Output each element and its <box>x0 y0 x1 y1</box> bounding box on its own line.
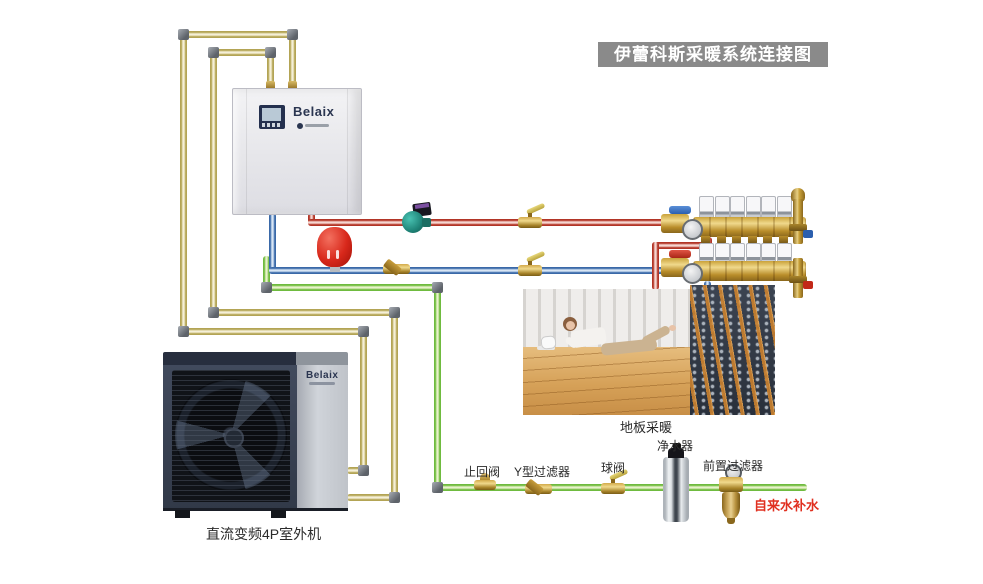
supply-pipe-run <box>308 219 672 226</box>
floor-heating-mat-photo <box>690 285 775 415</box>
manifold-actuator-cap <box>761 196 776 219</box>
unit-foot <box>175 510 190 518</box>
floor-heating-label: 地板采暖 <box>620 417 672 436</box>
outdoor-top-panel <box>163 352 348 365</box>
y-strainer-return-line <box>383 260 413 288</box>
refrigerant-pipe-inner-left <box>210 49 217 316</box>
check-valve-label: 止回阀 <box>464 463 500 480</box>
water-purifier <box>663 443 689 522</box>
unit-foot <box>271 510 286 518</box>
circulation-pump <box>402 202 434 234</box>
tank-highlight <box>336 250 339 259</box>
ball-valve-supply-line <box>516 202 546 228</box>
pipe-elbow-joint <box>208 307 219 318</box>
pre-filter-head <box>719 477 743 492</box>
laptop-screen <box>540 335 556 349</box>
valve-body <box>518 265 542 276</box>
pipe-elbow-joint <box>432 482 443 493</box>
pipe-elbow-joint <box>178 29 189 40</box>
pipe-elbow-joint <box>208 47 219 58</box>
lcd-screen <box>262 108 281 121</box>
pump-volute <box>402 211 424 233</box>
panel-seam <box>347 89 348 214</box>
manifold-actuator-cap <box>730 196 745 219</box>
title-banner: 伊蕾科斯采暖系统连接图 <box>598 42 828 67</box>
outdoor-brand-sub <box>309 382 335 385</box>
badge-bar <box>305 124 329 127</box>
return-pipe-riser <box>269 213 276 274</box>
woman-face <box>566 321 575 330</box>
fan-grille <box>172 370 290 502</box>
valve-body <box>518 217 542 228</box>
floor-planks <box>523 347 690 415</box>
air-vent-stem <box>793 199 803 244</box>
outdoor-brand-logo: Belaix <box>306 370 338 381</box>
check-valve-body <box>474 480 496 490</box>
outdoor-side-panel <box>297 365 348 510</box>
water-purifier-label: 净水器 <box>657 437 693 454</box>
tank-highlight <box>327 250 330 259</box>
brand-badge <box>297 122 331 129</box>
woman-foot <box>669 325 676 331</box>
control-display <box>259 105 285 129</box>
badge-dot <box>297 123 303 129</box>
pipe-elbow-joint <box>389 492 400 503</box>
supply-manifold-valve-handle <box>669 206 691 214</box>
floor-heating-room-photo <box>523 289 690 415</box>
indoor-brand-logo: Belaix <box>293 104 334 119</box>
pipe-elbow-joint <box>432 282 443 293</box>
pipe-elbow-joint <box>265 47 276 58</box>
pipe-elbow-joint <box>389 307 400 318</box>
y-strainer-fill-line <box>525 480 555 508</box>
pipe-elbow-joint <box>261 282 272 293</box>
manifold-actuator-cap <box>746 196 761 219</box>
pipe-elbow-joint <box>358 326 369 337</box>
wood-floor <box>523 347 690 415</box>
return-manifold-valve-handle <box>669 250 691 258</box>
panel-seam <box>246 89 247 214</box>
pipe-elbow-joint <box>178 326 189 337</box>
tap-water-makeup-label: 自来水补水 <box>754 495 819 514</box>
purifier-body <box>663 457 689 522</box>
mat-pipes <box>690 285 775 415</box>
fill-pipe-upper-run <box>263 284 441 291</box>
pump-outlet <box>422 218 431 227</box>
outdoor-heat-pump-unit: Belaix <box>163 352 348 518</box>
pipe-elbow-joint <box>287 29 298 40</box>
ball-valve-label: 球阀 <box>601 459 625 476</box>
refrigerant-pipe-outer-top <box>180 31 296 38</box>
refrigerant-pipe-outer-down <box>360 328 367 474</box>
manifold-actuator-cap <box>715 196 730 219</box>
ball-valve-return-line <box>516 250 546 276</box>
y-strainer-label: Y型过滤器 <box>514 463 570 480</box>
refrigerant-pipe-outer-left <box>180 31 187 334</box>
drain-lever-red <box>803 281 813 289</box>
expansion-tank <box>317 227 352 267</box>
unit-base <box>163 508 348 511</box>
heating-system-diagram: 伊蕾科斯采暖系统连接图 Belaix <box>0 0 983 584</box>
manifold-actuator-cap <box>777 196 792 219</box>
refrigerant-pipe-inner-run <box>210 309 398 316</box>
valve-body <box>601 483 625 494</box>
fill-pipe-down <box>434 284 441 490</box>
control-buttons <box>262 123 281 127</box>
outdoor-unit-label: 直流变频4P室外机 <box>206 524 321 544</box>
diagram-title: 伊蕾科斯采暖系统连接图 <box>614 45 812 64</box>
pre-filter-drain <box>727 518 735 524</box>
pressure-gauge <box>682 263 703 284</box>
supply-loop-down <box>652 242 659 290</box>
manifold-actuator-cap <box>699 196 714 219</box>
indoor-wall-hung-unit: Belaix <box>232 88 362 215</box>
drain-lever-blue <box>803 230 813 238</box>
pipe-elbow-joint <box>358 465 369 476</box>
pre-filter-label: 前置过滤器 <box>703 457 763 474</box>
grille-lines <box>172 370 290 502</box>
pressure-gauge <box>682 219 703 240</box>
refrigerant-pipe-outer-run <box>180 328 367 335</box>
pre-filter-bowl <box>722 492 740 519</box>
refrigerant-pipe-inner-down <box>391 309 398 501</box>
